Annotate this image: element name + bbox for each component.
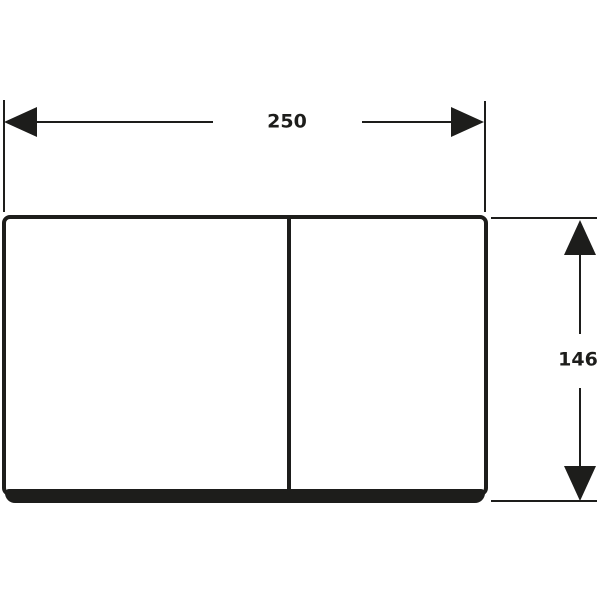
technical-drawing-canvas: 250 146: [0, 0, 600, 600]
width-dim-label: 250: [263, 113, 311, 132]
height-dim-label: 146: [554, 351, 600, 370]
height-dim-line-lower-segment: [579, 388, 581, 468]
plate-center-divider: [287, 219, 291, 491]
arrow-up-icon: [564, 220, 596, 255]
width-dim-line-left-segment: [28, 121, 213, 123]
height-dim-line-upper-segment: [579, 252, 581, 334]
width-dim-right-extension-line: [484, 101, 486, 212]
arrow-right-icon: [451, 107, 484, 137]
arrow-left-icon: [4, 107, 37, 137]
height-dim-top-extension-line: [491, 217, 597, 219]
arrow-down-icon: [564, 466, 596, 501]
width-dim-line-right-segment: [362, 121, 454, 123]
plate-bottom-edge: [5, 489, 485, 503]
plate-outline: [2, 215, 488, 496]
